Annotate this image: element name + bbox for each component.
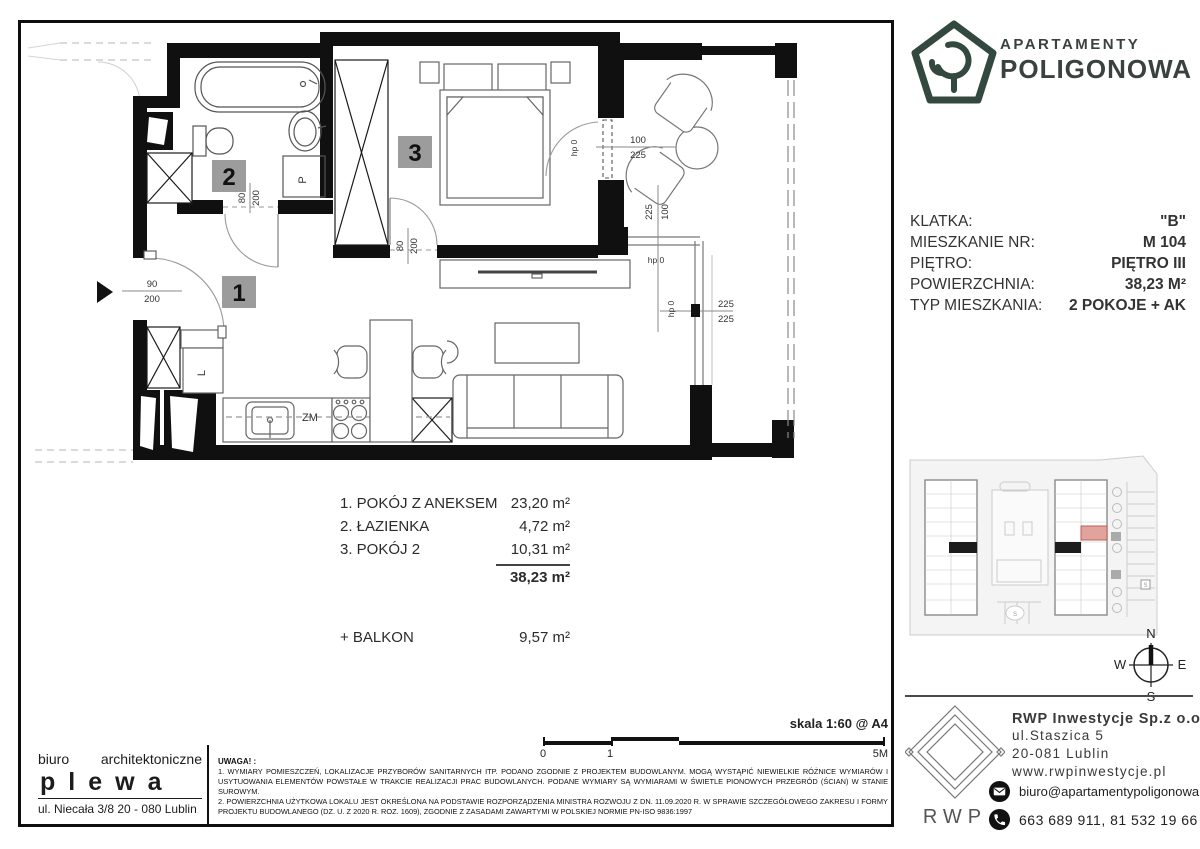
info-value: "B"	[1160, 211, 1186, 232]
info-value: 2 POKOJE + AK	[1069, 295, 1186, 316]
toilet-icon	[193, 126, 206, 156]
notes-block: UWAGA! : 1. WYMIARY POMIESZCZEŃ, LOKALIZ…	[218, 757, 888, 817]
balcony-chair-icon	[648, 64, 722, 138]
floor-plan-sheet: 90 200 80 200 80 200 100 225 225 100 225…	[0, 0, 1200, 849]
info-row-pietro: PIĘTRO: PIĘTRO III	[910, 253, 1186, 274]
room-name: 3. POKÓJ 2	[340, 538, 420, 561]
info-row-typ: TYP MIESZKANIA: 2 POKOJE + AK	[910, 295, 1186, 316]
compass-icon: N S W E	[1108, 624, 1194, 704]
compass-w: W	[1114, 657, 1127, 672]
site-s-marker: S	[1013, 612, 1017, 618]
notes-paragraph-1: 1. WYMIARY POMIESZCZEŃ, LOKALIZACJE PRZY…	[218, 767, 888, 797]
developer-info: RWP Inwestycje Sp.z o.o. ul.Staszica 5 2…	[1012, 711, 1197, 781]
architect-divider	[38, 798, 202, 799]
hp-label: hp 0	[648, 255, 665, 265]
fridge-label: L	[196, 370, 208, 376]
bathtub-icon	[195, 62, 325, 112]
info-label: PIĘTRO:	[910, 253, 972, 274]
compass-e: E	[1178, 657, 1187, 672]
dining-table-icon	[370, 320, 412, 442]
info-row-powierzchnia: POWIERZCHNIA: 38,23 M²	[910, 274, 1186, 295]
architect-address: ul. Niecała 3/8 20 - 080 Lublin	[38, 802, 202, 816]
info-row-klatka: KLATKA: "B"	[910, 211, 1186, 232]
email-icon	[988, 780, 1011, 803]
developer-phone-row: 663 689 911, 81 532 19 66	[988, 808, 1198, 831]
entrance-arrow-icon	[97, 281, 113, 303]
balcony-label: + BALKON	[340, 626, 414, 649]
info-label: POWIERZCHNIA:	[910, 274, 1035, 295]
apartment-info-panel: KLATKA: "B" MIESZKANIE NR: M 104 PIĘTRO:…	[910, 211, 1186, 316]
dim-window-a: 225	[718, 299, 734, 310]
balcony-table-icon	[676, 127, 718, 169]
site-s-marker-2: S	[1143, 583, 1147, 589]
legend-row: 1. POKÓJ Z ANEKSEM 23,20 m²	[340, 492, 570, 515]
dim-room3door-a: 80	[395, 241, 406, 252]
site-building-right	[1055, 480, 1107, 615]
balcony-railing	[788, 80, 794, 438]
notes-title: UWAGA! :	[218, 757, 888, 766]
pillow-icon	[498, 64, 546, 92]
legend-row: 2. ŁAZIENKA 4,72 m²	[340, 515, 570, 538]
info-label: TYP MIESZKANIA:	[910, 295, 1042, 316]
room-name: 2. ŁAZIENKA	[340, 515, 429, 538]
total-area: 38,23 m²	[340, 566, 570, 590]
room-name: 1. POKÓJ Z ANEKSEM	[340, 492, 498, 515]
developer-company: RWP Inwestycje Sp.z o.o.	[1012, 711, 1197, 727]
dimension-tick	[691, 304, 700, 317]
room-area: 23,20 m²	[511, 492, 570, 515]
compass-n: N	[1146, 626, 1155, 641]
lamp-icon	[447, 341, 458, 363]
entrance-door-arc	[150, 258, 224, 332]
brand-logo-icon	[908, 18, 1000, 112]
chair-icon	[334, 346, 367, 378]
dim-balconydoor-bottom: 225	[630, 150, 646, 161]
site-building-left	[925, 480, 977, 615]
nightstand-icon	[551, 62, 570, 83]
architect-name: plewa	[40, 768, 202, 797]
room-legend: 1. POKÓJ Z ANEKSEM 23,20 m² 2. ŁAZIENKA …	[340, 492, 570, 649]
room-badge-3: 3	[408, 140, 421, 167]
info-value: M 104	[1143, 232, 1186, 253]
phone-icon	[988, 808, 1011, 831]
dim-bathdoor-b: 200	[251, 190, 262, 206]
developer-phones: 663 689 911, 81 532 19 66	[1019, 812, 1198, 828]
developer-city: 20-081 Lublin	[1012, 745, 1197, 763]
developer-web: www.rwpinwestycje.pl	[1012, 763, 1197, 781]
dim-bathdoor-a: 80	[237, 193, 248, 204]
room-badge-2: 2	[222, 164, 235, 191]
architect-block: biuro architektoniczne plewa ul. Niecała…	[38, 751, 202, 816]
dim-balconydoor-top: 100	[630, 135, 646, 146]
developer-divider	[905, 695, 1193, 697]
dim-side-a: 225	[644, 204, 655, 220]
dishwasher-label: ZM	[302, 412, 318, 424]
info-label: MIESZKANIE NR:	[910, 232, 1035, 253]
washer-label: P	[297, 176, 309, 183]
notes-paragraph-2: 2. POWIERZCHNIA UŻYTKOWA LOKALU JEST OKR…	[218, 797, 888, 817]
brand-line1: APARTAMENTY	[1000, 36, 1195, 53]
titleblock-divider	[207, 745, 209, 827]
site-key-plan: S S	[905, 452, 1170, 642]
room-area: 10,31 m²	[511, 538, 570, 561]
brand-line2: POLIGONOWA	[1000, 54, 1195, 85]
balcony-area: 9,57 m²	[519, 626, 570, 649]
architect-word2: architektoniczne	[101, 751, 202, 767]
info-row-mieszkanie: MIESZKANIE NR: M 104	[910, 232, 1186, 253]
info-value: PIĘTRO III	[1111, 253, 1186, 274]
legend-balcony-row: + BALKON 9,57 m²	[340, 626, 570, 649]
nightstand-icon	[420, 62, 439, 83]
highlighted-unit	[1081, 526, 1107, 540]
dim-side-b: 100	[660, 204, 671, 220]
room-area: 4,72 m²	[519, 515, 570, 538]
dim-entrance-top: 90	[147, 279, 158, 290]
hp-label: hp 0	[569, 139, 579, 156]
dim-room3door-b: 200	[409, 238, 420, 254]
developer-street: ul.Staszica 5	[1012, 727, 1197, 745]
pillow-icon	[444, 64, 492, 92]
architect-type: biuro architektoniczne	[38, 751, 202, 767]
scale-bar: skala 1:60 @ A4 0 1 5M	[543, 716, 888, 762]
dim-entrance-bottom: 200	[144, 294, 160, 305]
kitchen-furniture	[181, 320, 623, 442]
info-value: 38,23 M²	[1125, 274, 1186, 295]
architect-word1: biuro	[38, 751, 69, 767]
scale-graphic	[543, 737, 888, 746]
legend-row: 3. POKÓJ 2 10,31 m²	[340, 538, 570, 561]
brand-text: APARTAMENTY POLIGONOWA	[1000, 36, 1195, 85]
developer-email: biuro@apartamentypoligonowa.pl	[1019, 784, 1200, 799]
scale-label: skala 1:60 @ A4	[543, 716, 888, 731]
coffee-table-icon	[495, 323, 579, 363]
info-label: KLATKA:	[910, 211, 973, 232]
room-badge-1: 1	[232, 280, 245, 307]
chair-icon	[413, 346, 446, 378]
hp-label: hp 0	[666, 300, 676, 317]
developer-email-row: biuro@apartamentypoligonowa.pl	[988, 780, 1200, 803]
dim-window-b: 225	[718, 314, 734, 325]
